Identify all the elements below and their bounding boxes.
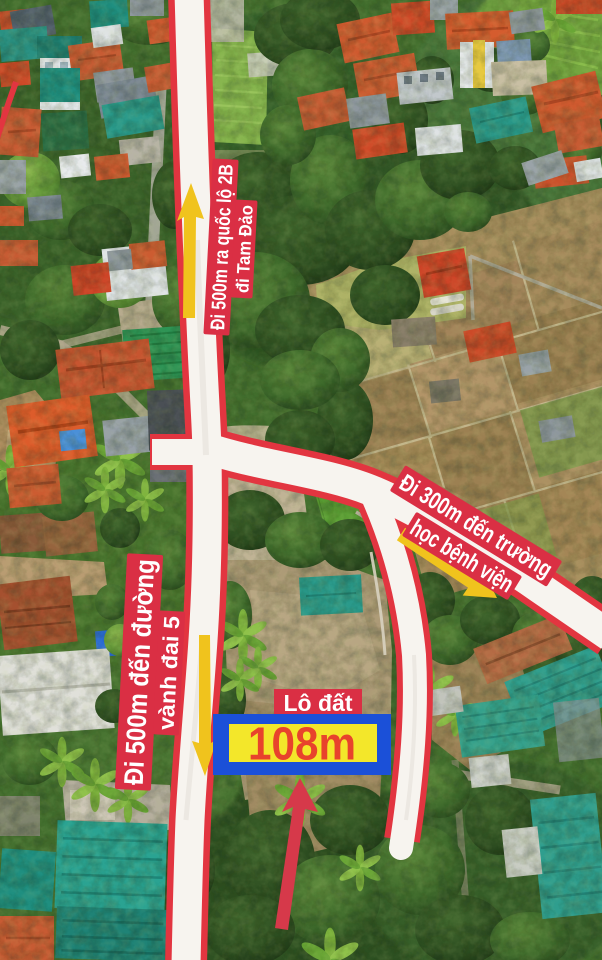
svg-text:Lô đất: Lô đất — [284, 690, 353, 716]
svg-text:108m: 108m — [248, 718, 356, 770]
